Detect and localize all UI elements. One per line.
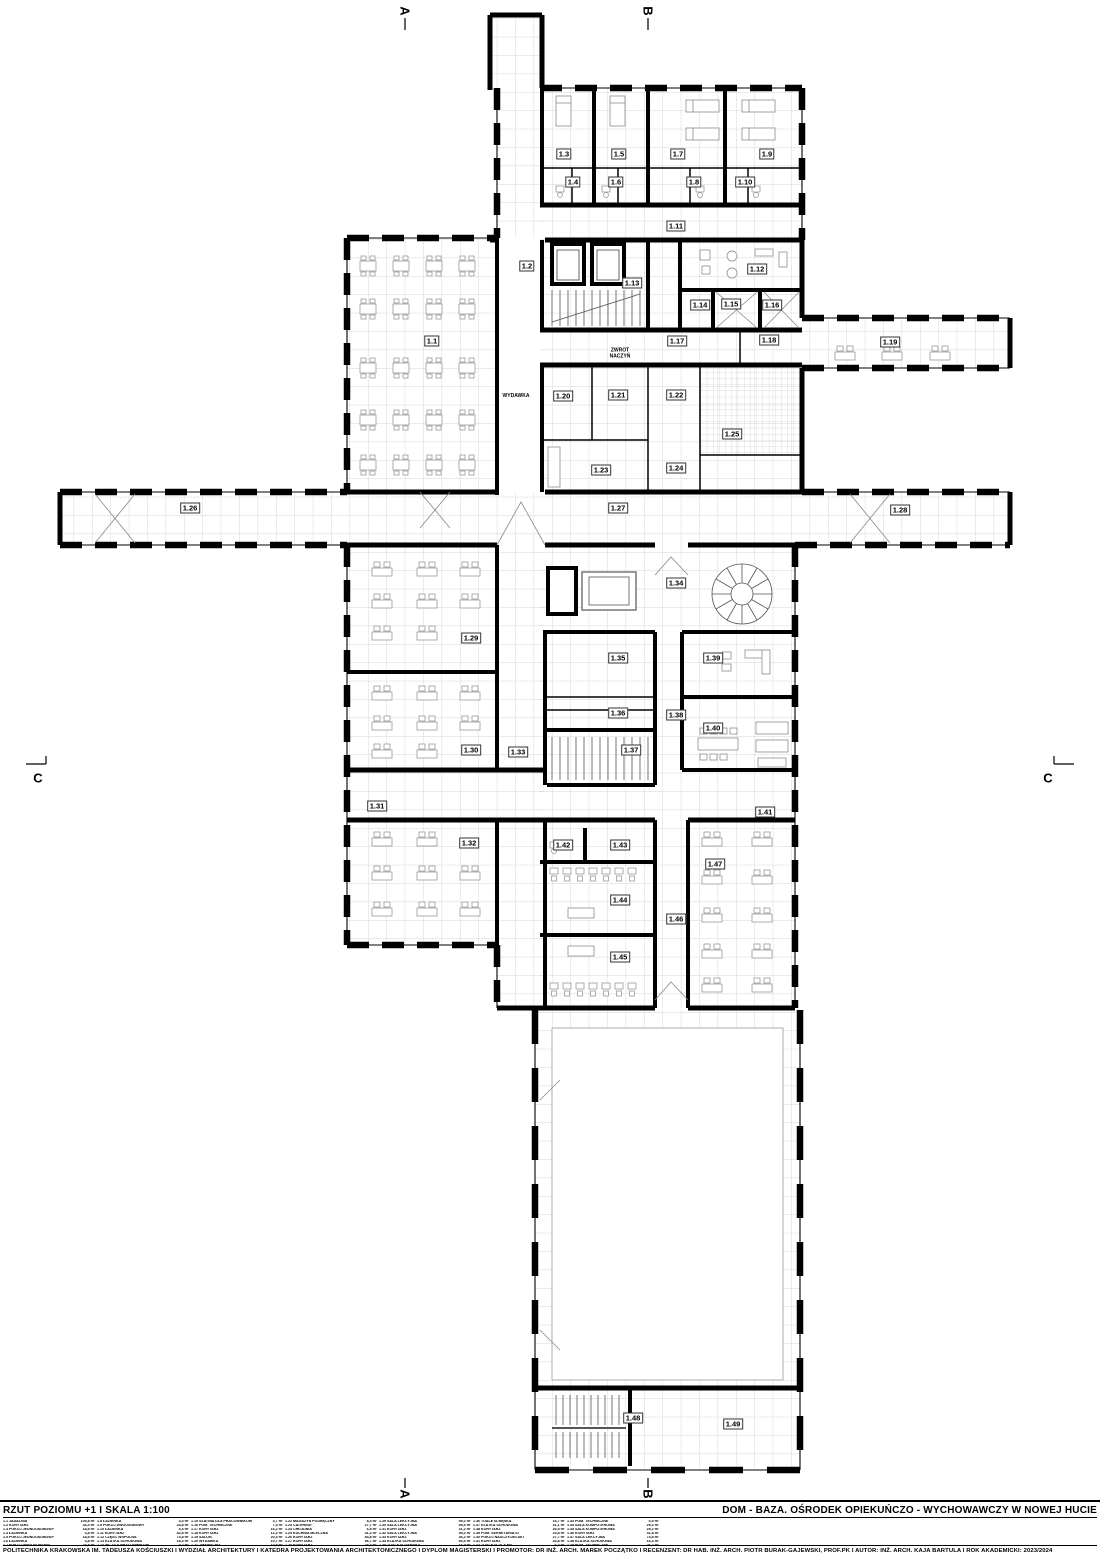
floor-plan: [0, 0, 1100, 1502]
spiral-stair: [712, 564, 772, 624]
project-title: DOM - BAZA. OŚRODEK OPIEKUŃCZO - WYCHOWA…: [722, 1505, 1097, 1516]
legend-column: 1.29 SALA LEKCYJNA59,2 m²1.30 SALA LEKCY…: [379, 1520, 471, 1548]
drawing-title: RZUT POZIOMU +1 I SKALA 1:100: [3, 1505, 170, 1516]
credit-row: POLITECHNIKA KRAKOWSKA IM. TADEUSZA KOŚC…: [3, 1545, 1097, 1556]
legend-column: 1.22 MAGAZYN PODRĘCZNY8,4 m²1.23 CATERIN…: [285, 1520, 377, 1548]
title-row: RZUT POZIOMU +1 I SKALA 1:100 DOM - BAZA…: [3, 1504, 1097, 1518]
room-legend: 1.1 JADALNIA105,8 m²1.2 KORYTARZ34,3 m²1…: [3, 1520, 651, 1544]
legend-column: 1.36 TOALETA MĘSKA16,7 m²1.37 KLATKA SCH…: [473, 1520, 565, 1548]
legend-column: 1.1 JADALNIA105,8 m²1.2 KORYTARZ34,3 m²1…: [3, 1520, 95, 1548]
legend-column: 1.43 POM. TECHNICZNE6,5 m²1.44 SALA KOMP…: [567, 1520, 659, 1548]
credits-line: POLITECHNIKA KRAKOWSKA IM. TADEUSZA KOŚC…: [3, 1548, 1052, 1554]
drawing-sheet: 1.11.21.31.41.51.61.71.81.91.101.111.121…: [0, 0, 1100, 1556]
title-block: RZUT POZIOMU +1 I SKALA 1:100 DOM - BAZA…: [0, 1500, 1100, 1556]
legend-column: 1.15 SZATNIA DLA PRACOWNIKÓW3,7 m²1.16 P…: [191, 1520, 283, 1548]
legend-column: 1.8 ŁAZIENKA4,4 m²1.9 POKÓJ DWUOSOBOWY24…: [97, 1520, 189, 1548]
